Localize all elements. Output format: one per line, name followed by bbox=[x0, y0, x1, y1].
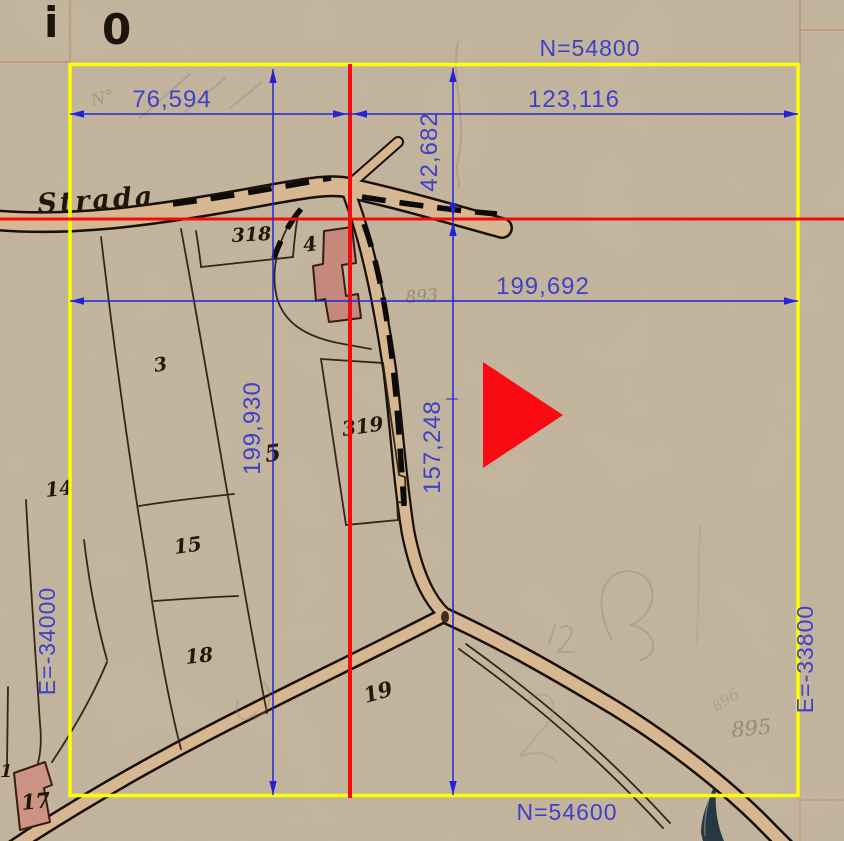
crosshair-vertical bbox=[348, 64, 352, 798]
margin-glyph-0: 0 bbox=[102, 5, 131, 54]
parcel-label-1-fragment: 1 bbox=[0, 761, 13, 782]
dim-value-lower-height: 157,248 bbox=[419, 400, 446, 494]
dim-value-top-right: 123,116 bbox=[528, 86, 620, 113]
grid-label-east-left: E=-34000 bbox=[34, 587, 60, 695]
pencil-note-895: 895 bbox=[730, 715, 772, 742]
grid-label-north-top: N=54800 bbox=[540, 35, 641, 61]
cad-canvas: Strada 318 4 3 5 14 15 18 19 17 319 1 89… bbox=[0, 0, 844, 841]
parcel-label-318: 318 bbox=[231, 223, 272, 247]
parcel-label-15: 15 bbox=[172, 531, 203, 559]
grid-label-north-bottom: N=54600 bbox=[517, 799, 618, 825]
parcel-label-17: 17 bbox=[20, 787, 52, 815]
dim-value-full-height: 199,930 bbox=[239, 381, 266, 475]
dim-value-upper-height: 42,682 bbox=[416, 112, 443, 191]
dim-value-top-left: 76,594 bbox=[132, 86, 211, 113]
crosshair-horizontal bbox=[0, 218, 844, 221]
grid-label-east-right: E=-33800 bbox=[792, 605, 818, 713]
dim-value-full-width: 199,692 bbox=[496, 273, 590, 300]
parcel-label-18: 18 bbox=[184, 642, 214, 669]
boundary-edge-left bbox=[7, 687, 8, 766]
margin-glyph-i: i bbox=[44, 0, 58, 47]
road-junction-mark bbox=[441, 611, 449, 623]
pencil-note-893: 893 bbox=[405, 285, 439, 308]
map-viewport[interactable]: Strada 318 4 3 5 14 15 18 19 17 319 1 89… bbox=[0, 0, 844, 841]
